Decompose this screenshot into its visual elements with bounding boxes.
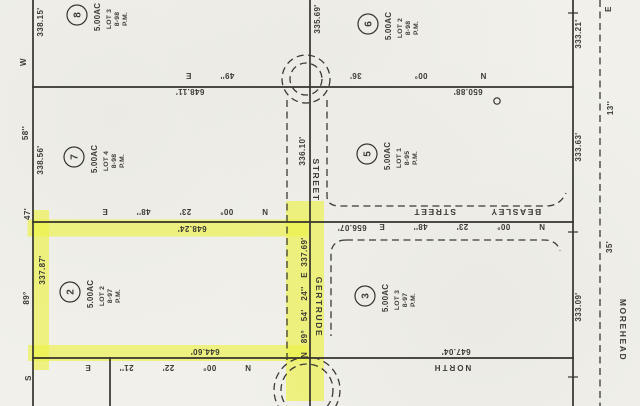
- gertrude-north-culdesac-inner: [290, 63, 322, 95]
- lot-3-map-ref: 8-97: [402, 293, 409, 307]
- north-line-annotations: 49'' E 648.11' N 00° 36' 650.88': [176, 71, 487, 96]
- lot-5-label: 5 5.00AC LOT 1 8-95 P.M.: [357, 142, 419, 170]
- dim-east-segment-mid: 333.63': [574, 132, 583, 161]
- dim-east-segment-bottom: 333.09': [574, 292, 583, 321]
- lot-2-number: 2: [66, 289, 77, 295]
- label-north-direction: NORTH: [433, 363, 471, 372]
- bearing-morehead-seconds: 13'': [606, 101, 615, 115]
- bearing-lot2-north: N 00° 23' 48'' E: [102, 207, 268, 216]
- street-word-gertrude: STREET: [311, 158, 321, 201]
- east-boundary-annotations: 333.21' 333.63' 333.09' E 13'' 35' MOREH…: [574, 6, 628, 361]
- dim-lot2-south: 644.60': [190, 347, 219, 356]
- lot-7-acreage: 5.00AC: [90, 145, 99, 173]
- dim-west-segment-top: 338.15': [36, 7, 45, 36]
- lot-2-label: 2 5.00AC LOT 2 8-97 P.M.: [60, 280, 122, 308]
- bearing-west-seconds: 58'': [21, 126, 30, 140]
- lot-7-pm: P.M.: [119, 154, 126, 168]
- lot-6-number: 6: [364, 21, 375, 27]
- lot-2-lot-no: LOT 2: [99, 286, 106, 306]
- gertrude-north-culdesac: [282, 55, 330, 103]
- lot-6-pm: P.M.: [413, 21, 420, 35]
- street-name-morehead: MOREHEAD: [618, 299, 628, 361]
- lot-8-lot-no: LOT 3: [106, 9, 113, 29]
- bearing-north-line-east: N 00° 36': [350, 71, 487, 80]
- dim-west-segment-mid: 338.56': [36, 145, 45, 174]
- bearing-morehead-e: E: [604, 6, 613, 12]
- lot-6-map-ref: 8-98: [405, 21, 412, 35]
- dim-gertrude-top: 335.69': [313, 4, 322, 33]
- lot-2-pm: P.M.: [115, 289, 122, 303]
- dim-east-segment-top: 333.21': [574, 19, 583, 48]
- street-name-beasley: BEASLEY STREET: [413, 207, 541, 217]
- lot-2-acreage: 5.00AC: [86, 280, 95, 308]
- bearing-west-minutes: 47': [23, 208, 32, 220]
- lot-5-number: 5: [363, 151, 374, 157]
- lot-7-map-ref: 8-98: [111, 154, 118, 168]
- bearing-north-line-west: 49'' E: [185, 71, 234, 80]
- bearing-gertrude: N 89° 54' 24'' E: [300, 272, 309, 358]
- lot-7-number: 7: [70, 154, 81, 160]
- bearing-west-w: W: [19, 58, 28, 66]
- lot-8-pm: P.M.: [122, 12, 129, 26]
- lot-3-acreage: 5.00AC: [381, 284, 390, 312]
- lot-6-label: 6 5.00AC LOT 2 8-98 P.M.: [358, 12, 420, 40]
- bearing-west-degrees: 89°: [22, 291, 31, 304]
- dim-gertrude-mid: 336.10': [298, 136, 307, 165]
- lot-6-lot-no: LOT 2: [397, 18, 404, 38]
- dim-north-line-east: 650.88': [453, 87, 482, 96]
- lot-5-lot-no: LOT 1: [396, 148, 403, 168]
- lot-8-number: 8: [73, 12, 84, 18]
- lot-7-lot-no: LOT 4: [103, 151, 110, 171]
- lot-8-map-ref: 8-98: [114, 12, 121, 26]
- beasley-south-edge: [346, 240, 560, 251]
- lot-8-label: 8 5.00AC LOT 3 8-98 P.M.: [67, 3, 129, 31]
- plat-map-svg: 338.15' W 58'' 338.56' 47' 337.87' 89° S…: [0, 0, 640, 406]
- dim-beasley: 656.07': [337, 223, 366, 232]
- bearing-morehead-minutes: 35': [605, 241, 614, 253]
- dim-south-line-east: 647.04': [441, 347, 470, 356]
- bearing-lot2-south: N 00° 22' 21'' E: [85, 363, 251, 372]
- lot-7-label: 7 5.00AC LOT 4 8-98 P.M.: [64, 145, 126, 173]
- lot-5-acreage: 5.00AC: [383, 142, 392, 170]
- dim-gertrude-frontage: 337.69': [300, 237, 309, 266]
- small-circle-mark: [494, 98, 500, 104]
- lot-5-pm: P.M.: [412, 151, 419, 165]
- lot-3-number: 3: [361, 293, 372, 299]
- dim-north-line-west: 648.11': [176, 87, 205, 96]
- lot-3-label: 3 5.00AC LOT 3 8-97 P.M.: [355, 284, 417, 312]
- bearing-west-s: S: [24, 375, 33, 381]
- lot3-west-dashed-edge: [331, 240, 346, 336]
- lot-6-acreage: 5.00AC: [384, 12, 393, 40]
- dim-lot2-north: 648.24': [177, 224, 206, 233]
- street-name-gertrude: GERTRUDE: [314, 277, 324, 338]
- plat-map: 338.15' W 58'' 338.56' 47' 337.87' 89° S…: [0, 0, 640, 406]
- lot-3-lot-no: LOT 3: [394, 290, 401, 310]
- dim-west-segment-bottom: 337.87': [38, 255, 47, 284]
- lot-3-pm: P.M.: [410, 293, 417, 307]
- bearing-beasley: N 00° 23' 48'' E: [379, 222, 545, 231]
- lot-8-acreage: 5.00AC: [93, 3, 102, 31]
- lot-5-map-ref: 8-95: [404, 151, 411, 165]
- lot-2-map-ref: 8-97: [107, 289, 114, 303]
